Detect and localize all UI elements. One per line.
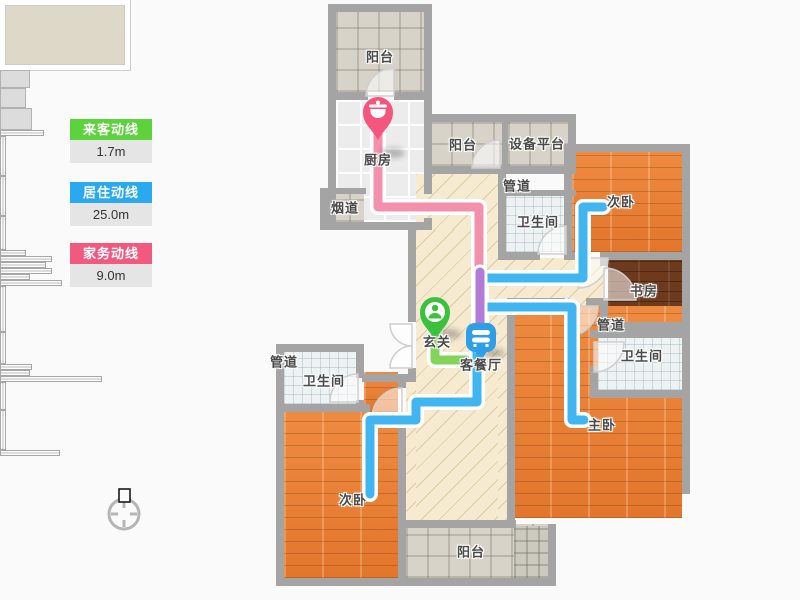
room-label-bath-top: 卫生间 — [517, 212, 559, 231]
person-icon — [425, 302, 445, 322]
room-label-balcony-top: 阳台 — [366, 47, 394, 66]
room-label-duct-right: 管道 — [597, 315, 625, 334]
wall — [424, 114, 576, 122]
room-label-duct-top: 管道 — [503, 176, 531, 195]
wall — [394, 92, 424, 100]
wall — [507, 298, 515, 522]
window — [0, 332, 6, 364]
window — [0, 286, 6, 332]
room-label-equipment-platform: 设备平台 — [509, 134, 565, 153]
wall — [328, 4, 336, 230]
room-label-kitchen: 厨房 — [364, 150, 392, 169]
floor-balcony-bottom-dark — [514, 526, 548, 578]
window — [0, 280, 62, 286]
room-label-bedroom-2-left: 次卧 — [339, 490, 367, 509]
wall — [408, 296, 416, 322]
wall — [566, 252, 578, 260]
wall — [498, 252, 540, 260]
room-label-bedroom-2-right: 次卧 — [607, 192, 635, 211]
wall — [336, 92, 368, 100]
legend-value-chore: 9.0m — [70, 264, 152, 287]
legend-item-chore[interactable]: 家务动线 9.0m — [70, 243, 152, 287]
wall — [564, 144, 690, 152]
window — [0, 176, 6, 216]
bay-window-bottom-right — [0, 0, 130, 70]
wall — [398, 424, 406, 524]
window — [0, 450, 60, 456]
legend-value-living: 25.0m — [70, 203, 152, 226]
duct-top-shaft — [0, 70, 30, 88]
duct-right-shaft — [0, 88, 26, 108]
wall — [406, 520, 516, 528]
wall — [586, 298, 604, 306]
window — [0, 216, 6, 250]
legend-value-guest: 1.7m — [70, 140, 152, 163]
room-label-bath-right: 卫生间 — [621, 346, 663, 365]
wall — [424, 114, 432, 194]
legend-label-guest: 来客动线 — [70, 119, 152, 140]
room-label-master-bedroom: 主卧 — [588, 415, 616, 434]
floor-living-b — [416, 230, 498, 520]
wall — [398, 578, 556, 586]
window — [0, 410, 6, 450]
wall — [424, 4, 432, 114]
room-label-balcony-mid: 阳台 — [449, 135, 477, 154]
duct-left-shaft — [0, 108, 32, 130]
wall — [276, 578, 406, 586]
wall — [320, 188, 366, 194]
compass-icon — [109, 489, 139, 529]
wall — [682, 144, 690, 494]
legend-label-living: 居住动线 — [70, 182, 152, 203]
window — [0, 136, 6, 176]
wall — [408, 226, 416, 296]
room-label-duct-left: 管道 — [270, 352, 298, 371]
wall — [362, 374, 414, 382]
room-label-flue: 烟道 — [331, 198, 359, 217]
room-label-bath-left: 卫生间 — [303, 371, 345, 390]
legend-item-living[interactable]: 居住动线 25.0m — [70, 182, 152, 226]
floorplan-canvas: 阳台 厨房 烟道 阳台 设备平台 管道 卫生间 次卧 书房 管道 卫生间 玄关 … — [0, 0, 800, 600]
wall — [276, 344, 284, 584]
wall — [564, 144, 572, 260]
wall — [328, 4, 432, 12]
room-label-entry: 玄关 — [423, 332, 451, 351]
room-label-living-dining: 客餐厅 — [460, 355, 502, 374]
wall — [276, 404, 370, 412]
wall — [502, 122, 508, 166]
window — [0, 376, 102, 382]
legend-item-guest[interactable]: 来客动线 1.7m — [70, 119, 152, 163]
wall — [320, 222, 366, 230]
wall — [608, 252, 690, 260]
window — [0, 382, 6, 410]
wall — [398, 382, 406, 388]
legend-label-chore: 家务动线 — [70, 243, 152, 264]
window — [0, 130, 44, 136]
wall — [398, 524, 406, 586]
wall — [600, 252, 608, 266]
floor-living-d — [406, 382, 416, 520]
wall — [507, 298, 565, 306]
wall — [590, 390, 690, 398]
room-label-study: 书房 — [630, 281, 658, 300]
wall — [356, 352, 364, 378]
wall — [548, 524, 556, 586]
room-label-balcony-bottom: 阳台 — [457, 542, 485, 561]
floorplan-screenshot: { "legend": { "items": [ {"id": "guest",… — [0, 0, 800, 600]
